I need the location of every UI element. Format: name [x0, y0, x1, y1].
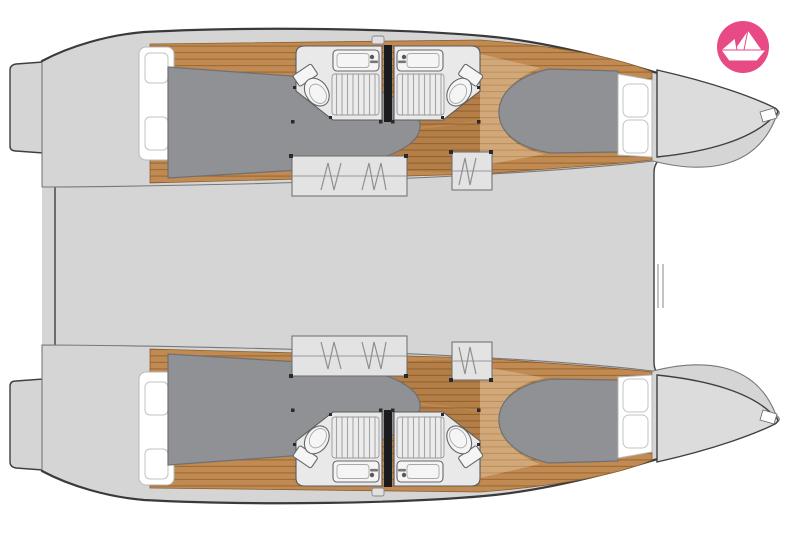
brand-logo	[717, 21, 769, 73]
bow-hatch	[623, 120, 648, 153]
fwd-cabin-berth	[499, 69, 618, 153]
shower-grate	[332, 74, 379, 115]
side-hatch	[145, 117, 168, 150]
sink	[333, 50, 379, 71]
companionway-stairs-aft	[292, 156, 407, 196]
catamaran-floorplan	[0, 0, 800, 533]
faucet-icon	[402, 55, 406, 59]
bow-hatch	[623, 84, 648, 117]
hull-unit-mirrored	[10, 336, 779, 503]
shower-grate	[397, 74, 444, 115]
deck-cleat	[372, 36, 384, 44]
mast-step-lines	[658, 264, 663, 308]
sink	[397, 50, 443, 71]
floorplan-canvas	[0, 0, 800, 533]
foredeck-trampoline-edge	[654, 157, 702, 378]
faucet-icon	[370, 55, 374, 59]
side-hatch	[145, 53, 168, 83]
stern-platform	[10, 62, 43, 153]
hull-unit	[10, 29, 779, 196]
companionway-stairs-fwd	[452, 152, 492, 190]
head-divider-bulkhead	[384, 45, 392, 122]
fwd-cabin-side-panel	[618, 74, 652, 157]
